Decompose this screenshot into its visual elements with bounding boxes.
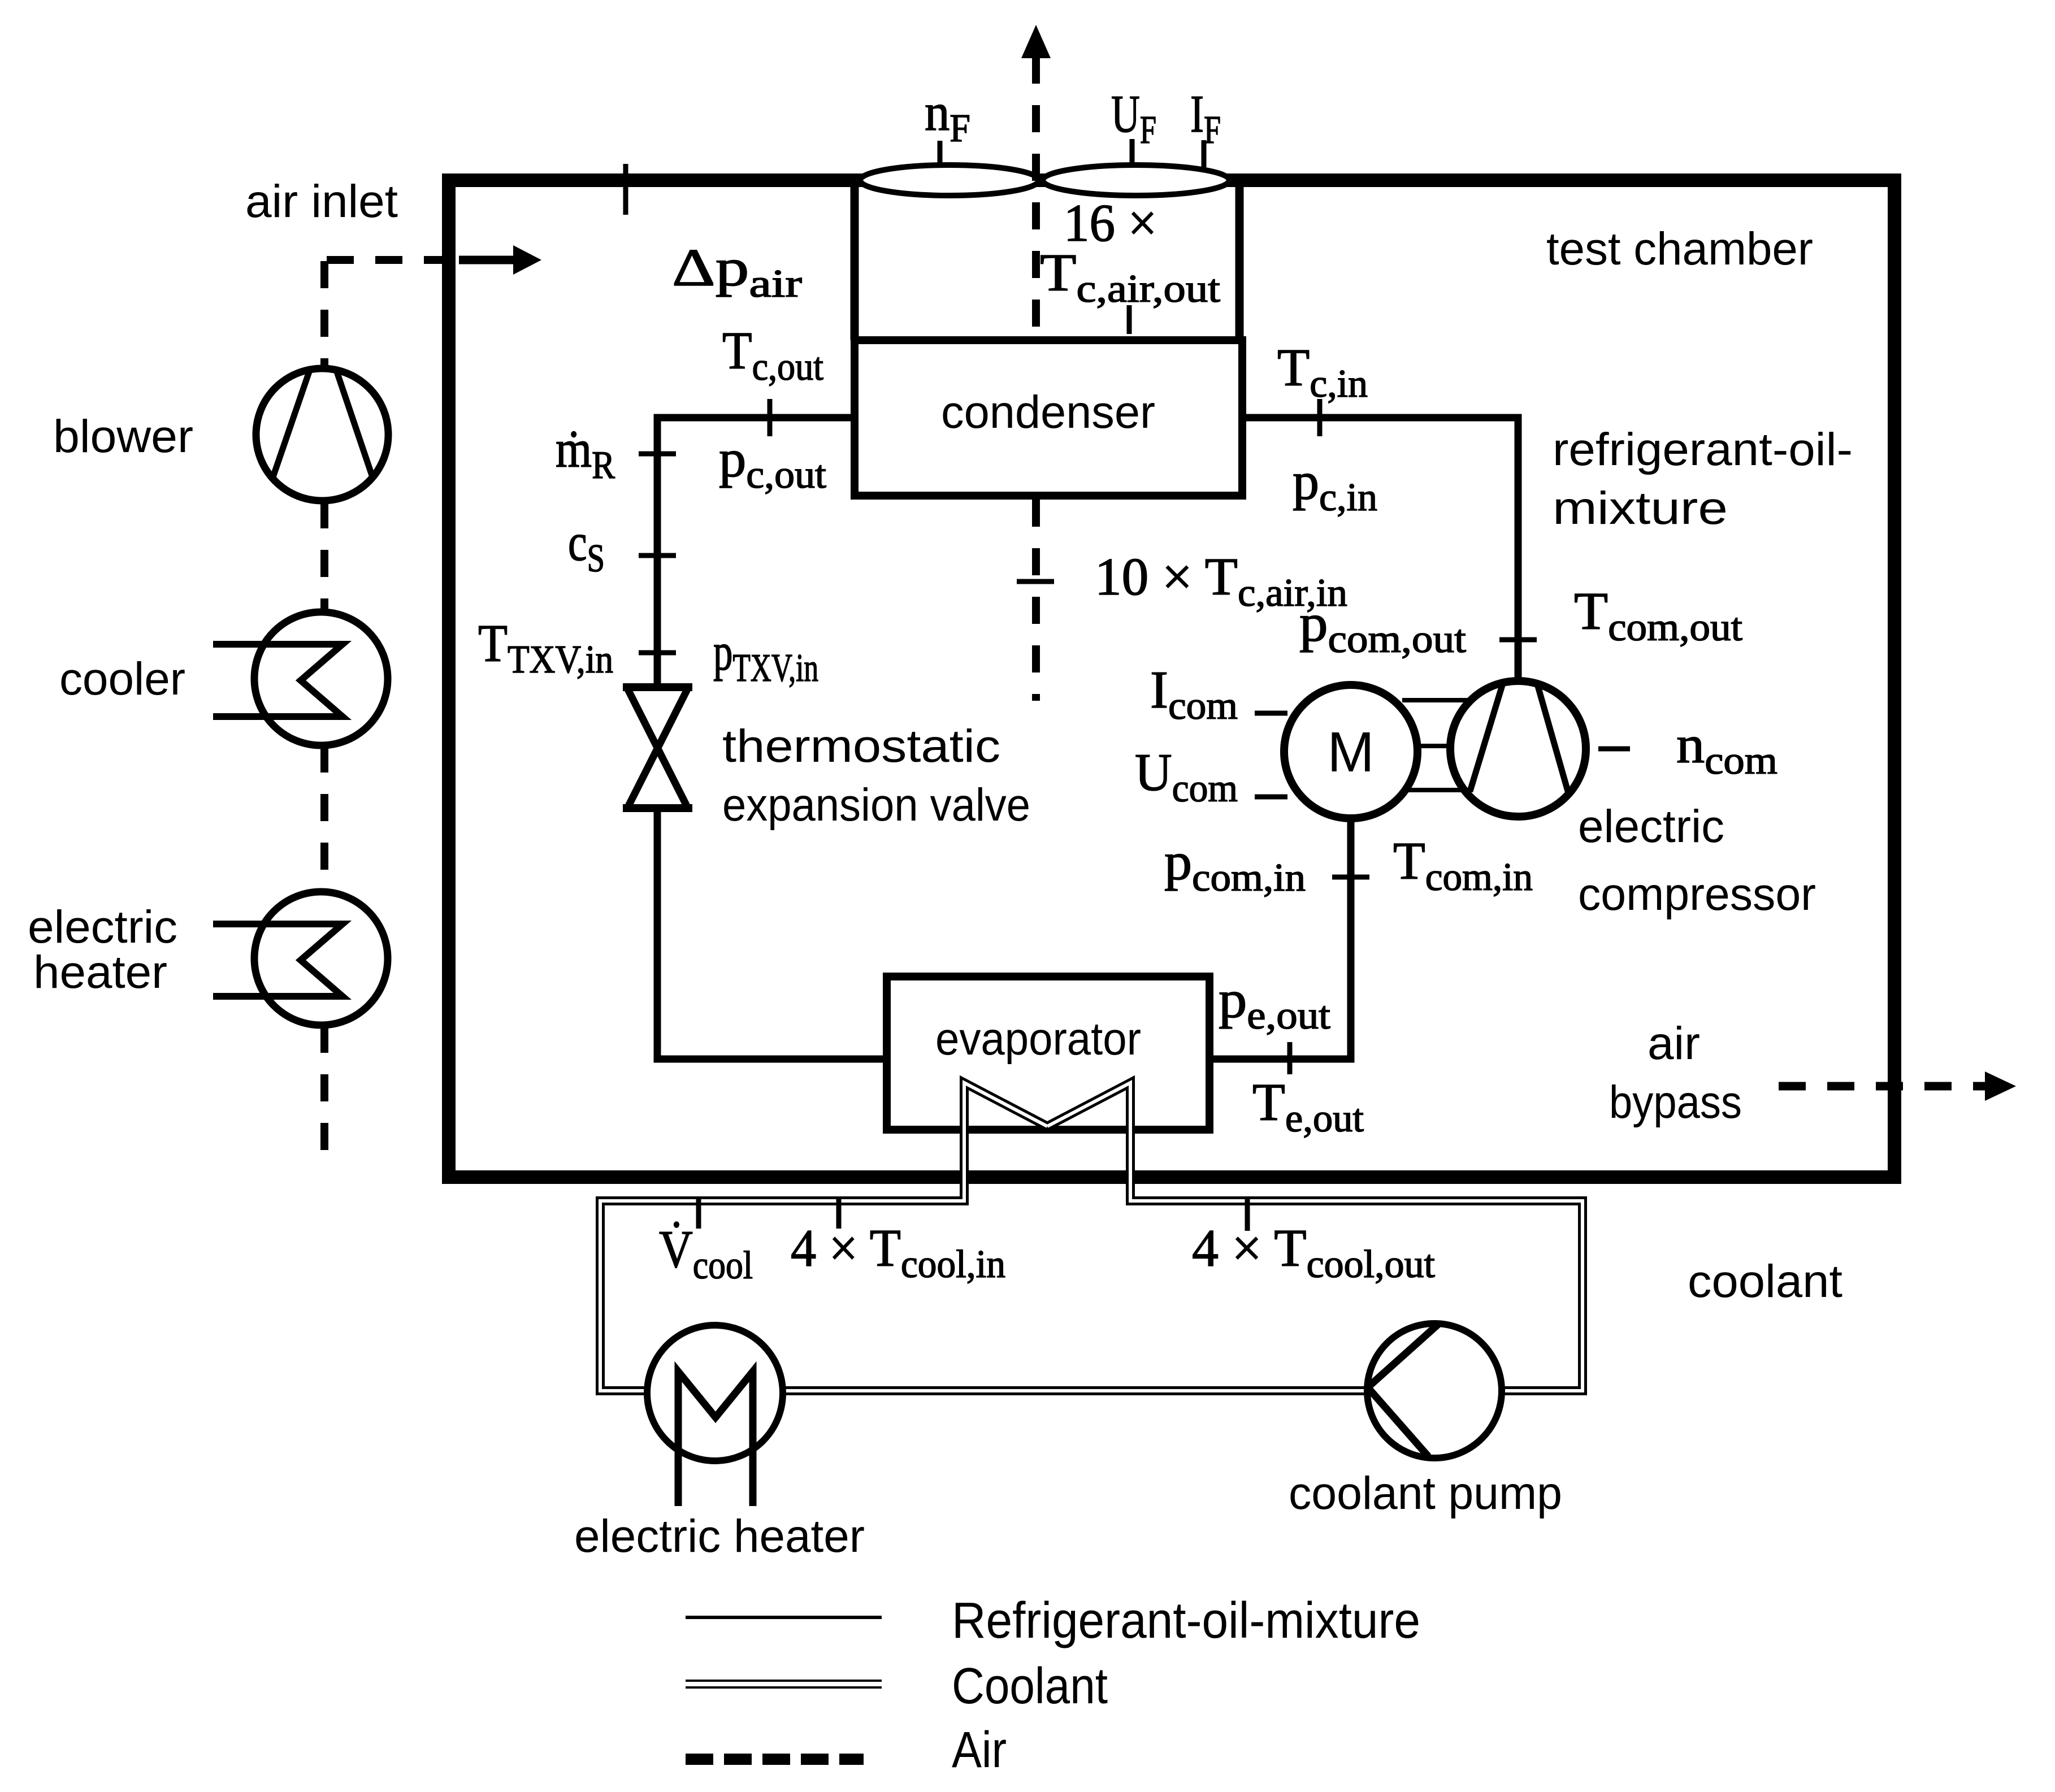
- svg-text:Tc,air,out: Tc,air,out: [1040, 244, 1221, 311]
- svg-text:Refrigerant-oil-mixture: Refrigerant-oil-mixture: [952, 1593, 1420, 1649]
- svg-text:Tcom,out: Tcom,out: [1574, 582, 1743, 649]
- svg-text:expansion valve: expansion valve: [722, 779, 1030, 831]
- svg-text:pe,out: pe,out: [1219, 970, 1331, 1038]
- svg-text:electric: electric: [28, 901, 177, 953]
- svg-text:evaporator: evaporator: [935, 1013, 1141, 1065]
- svg-text:10 × Tc,air,in: 10 × Tc,air,in: [1095, 548, 1347, 615]
- svg-text:Te,out: Te,out: [1252, 1073, 1364, 1140]
- svg-text:nF: nF: [925, 83, 970, 150]
- svg-text:16 ×: 16 ×: [1064, 194, 1157, 253]
- svg-text:pcom,in: pcom,in: [1164, 832, 1306, 900]
- svg-text:test chamber: test chamber: [1546, 223, 1813, 275]
- svg-text:compressor: compressor: [1578, 869, 1816, 920]
- svg-text:4 × Tcool,out: 4 × Tcool,out: [1192, 1219, 1436, 1286]
- svg-text:electric heater: electric heater: [574, 1511, 865, 1562]
- svg-text:Δpair: Δpair: [672, 238, 802, 306]
- svg-text:ncom: ncom: [1676, 715, 1777, 783]
- svg-text:thermostatic: thermostatic: [722, 721, 1000, 772]
- svg-text:Tc,in: Tc,in: [1277, 339, 1368, 406]
- svg-text:air: air: [1648, 1018, 1700, 1069]
- svg-text:TTXV,in: TTXV,in: [478, 614, 613, 682]
- svg-text:coolant pump: coolant pump: [1289, 1468, 1562, 1519]
- svg-text:condenser: condenser: [941, 387, 1155, 438]
- svg-text:V̇cool: V̇cool: [659, 1220, 753, 1287]
- svg-text:pc,out: pc,out: [719, 429, 827, 497]
- svg-text:IF: IF: [1190, 85, 1221, 152]
- svg-text:bypass: bypass: [1609, 1077, 1742, 1128]
- svg-text:pc,in: pc,in: [1293, 452, 1377, 519]
- svg-text:Ucom: Ucom: [1135, 743, 1238, 810]
- svg-text:ṁR: ṁR: [556, 420, 615, 487]
- svg-text:refrigerant-oil-: refrigerant-oil-: [1553, 424, 1853, 475]
- svg-text:heater: heater: [33, 947, 167, 998]
- svg-text:4 × Tcool,in: 4 × Tcool,in: [791, 1219, 1005, 1286]
- svg-text:cooler: cooler: [59, 653, 185, 705]
- svg-text:Tc,out: Tc,out: [722, 322, 823, 389]
- svg-text:Air: Air: [952, 1722, 1007, 1778]
- svg-text:M: M: [1327, 721, 1374, 784]
- svg-text:Tcom,in: Tcom,in: [1393, 832, 1533, 899]
- svg-text:Icom: Icom: [1150, 661, 1238, 728]
- svg-text:mixture: mixture: [1553, 483, 1728, 534]
- svg-text:pTXV,in: pTXV,in: [713, 623, 818, 690]
- svg-text:air inlet: air inlet: [245, 176, 398, 227]
- svg-text:electric: electric: [1578, 801, 1724, 852]
- svg-text:UF: UF: [1111, 85, 1156, 152]
- svg-text:blower: blower: [53, 411, 193, 462]
- svg-text:cS: cS: [568, 513, 605, 580]
- svg-text:coolant: coolant: [1688, 1256, 1842, 1307]
- svg-text:Coolant: Coolant: [952, 1658, 1108, 1715]
